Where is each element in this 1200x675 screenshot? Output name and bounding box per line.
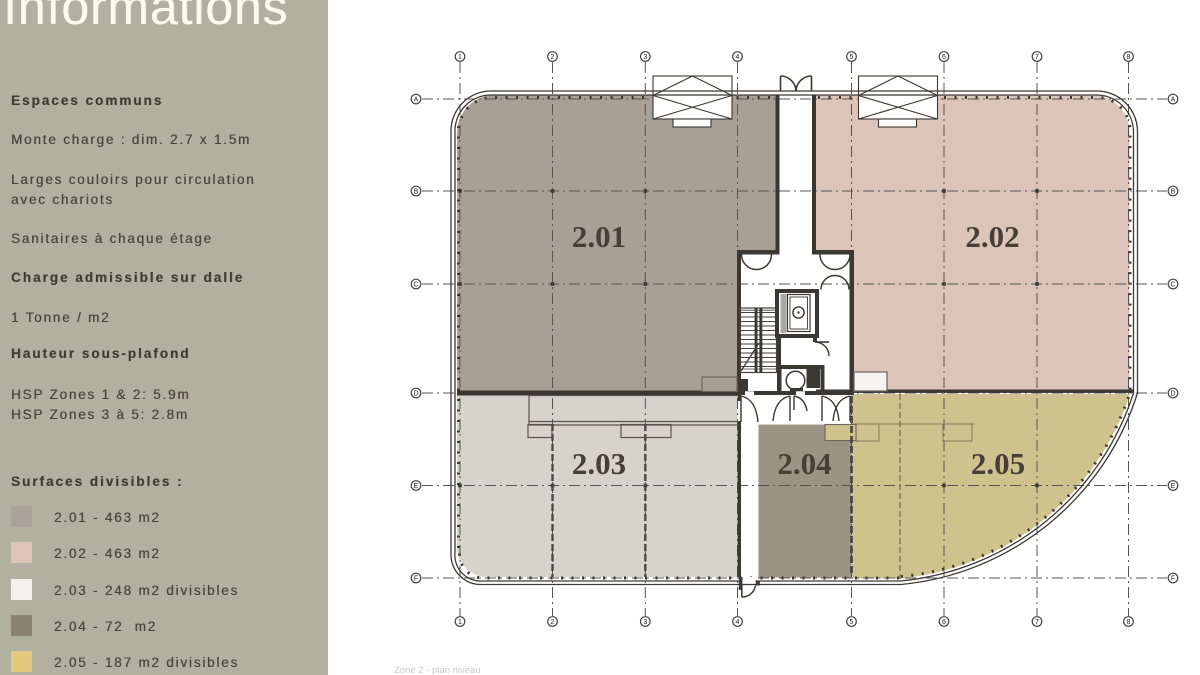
svg-text:A: A xyxy=(414,97,419,104)
svg-text:8: 8 xyxy=(1127,54,1131,61)
svg-text:F: F xyxy=(1171,576,1175,583)
svg-text:2.02: 2.02 xyxy=(965,219,1019,254)
svg-text:B: B xyxy=(1171,189,1176,196)
svg-text:7: 7 xyxy=(1035,54,1039,61)
svg-text:1: 1 xyxy=(458,619,462,626)
svg-text:3: 3 xyxy=(643,619,647,626)
svg-text:C: C xyxy=(1170,282,1175,289)
svg-text:1: 1 xyxy=(458,54,462,61)
svg-text:4: 4 xyxy=(736,619,740,626)
svg-text:D: D xyxy=(1170,391,1175,398)
svg-text:5: 5 xyxy=(850,54,854,61)
svg-text:6: 6 xyxy=(942,619,946,626)
svg-text:5: 5 xyxy=(850,619,854,626)
svg-text:2: 2 xyxy=(551,619,555,626)
svg-text:F: F xyxy=(414,576,418,583)
svg-text:2.03: 2.03 xyxy=(572,446,626,481)
svg-text:E: E xyxy=(414,483,419,490)
svg-text:2: 2 xyxy=(551,54,555,61)
svg-text:4: 4 xyxy=(736,54,740,61)
svg-text:8: 8 xyxy=(1127,619,1131,626)
svg-text:2.01: 2.01 xyxy=(572,219,626,254)
svg-text:2.04: 2.04 xyxy=(777,446,831,481)
svg-text:3: 3 xyxy=(643,54,647,61)
svg-text:2.05: 2.05 xyxy=(971,446,1025,481)
svg-text:D: D xyxy=(413,391,418,398)
svg-text:A: A xyxy=(1171,97,1176,104)
svg-text:7: 7 xyxy=(1035,619,1039,626)
svg-text:6: 6 xyxy=(942,54,946,61)
svg-text:E: E xyxy=(1171,483,1176,490)
svg-text:B: B xyxy=(414,189,419,196)
svg-text:Zone 2 - plan niveau: Zone 2 - plan niveau xyxy=(394,665,481,675)
svg-text:C: C xyxy=(413,282,418,289)
